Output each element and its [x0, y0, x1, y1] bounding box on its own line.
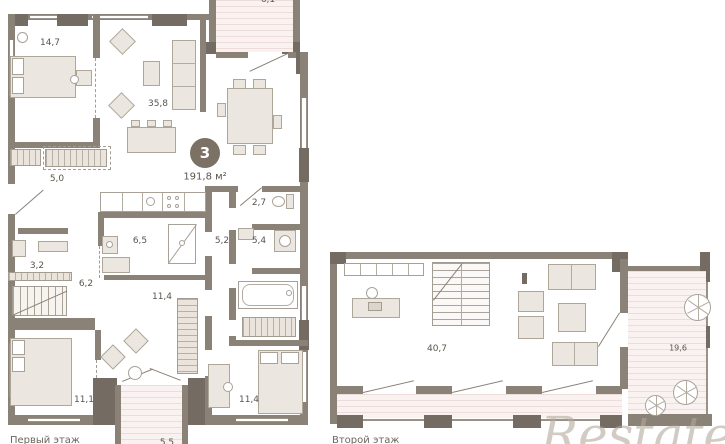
terrace-door-swing	[598, 312, 620, 346]
wall-segment	[205, 256, 212, 290]
room-area-balcony: 5,5	[160, 438, 174, 444]
room-area-terrace: 19,6	[669, 344, 687, 353]
wall-pillar	[424, 415, 452, 428]
wall-segment	[200, 20, 206, 112]
chair	[253, 79, 266, 89]
wall-segment	[330, 252, 628, 259]
room-area-closet: 3,2	[30, 261, 44, 271]
sofa	[552, 342, 598, 366]
shelf-row	[8, 272, 72, 281]
rooms-count: 3	[200, 144, 210, 162]
wall-segment	[8, 318, 95, 330]
wall-pillar	[337, 415, 363, 428]
sofa-cushion-line	[574, 343, 575, 365]
armchair	[518, 316, 544, 339]
armchair	[109, 28, 136, 55]
wall-segment	[620, 347, 628, 389]
floor1-caption: Первый этаж	[10, 435, 80, 444]
sliding-door	[95, 58, 98, 118]
counter-divider	[184, 193, 185, 211]
wall-segment	[98, 212, 206, 218]
window	[301, 286, 307, 320]
wall-segment	[262, 186, 308, 192]
balcony-floor	[121, 385, 182, 444]
bar-stool	[163, 120, 172, 127]
door-opening	[96, 360, 98, 378]
stairs	[432, 262, 490, 326]
wall-segment	[18, 228, 68, 234]
counter-divider	[142, 193, 143, 211]
door-opening	[99, 246, 101, 278]
pillow	[12, 357, 25, 372]
rooms-count-badge: 3	[190, 138, 220, 168]
wall-segment	[212, 186, 238, 192]
armchair	[108, 92, 135, 119]
shelf-divider	[392, 264, 393, 275]
wall-segment	[182, 385, 188, 444]
wall-segment	[330, 252, 337, 424]
chair	[233, 145, 246, 155]
bar-stool	[147, 120, 156, 127]
counter-divider	[122, 193, 123, 211]
washbasin-bowl	[106, 241, 113, 248]
chair	[253, 145, 266, 155]
room-area-bedroom: 14,7	[40, 38, 60, 48]
wall-segment	[596, 386, 622, 394]
pillow	[12, 340, 25, 355]
window	[30, 15, 57, 19]
room-area-lounge: 11,4	[152, 292, 172, 302]
side-table	[128, 366, 142, 380]
wall-segment	[252, 268, 300, 274]
stove-burner-icon	[167, 196, 171, 200]
towel-rack	[242, 317, 296, 337]
sofa	[172, 40, 196, 110]
floor2-caption: Второй этаж	[332, 435, 399, 444]
french-window-pane	[452, 380, 503, 393]
room-area-bedroom2: 11,1	[74, 395, 94, 405]
sink-icon	[146, 197, 155, 206]
wall-segment	[416, 386, 452, 394]
room-area-hall: 5,2	[215, 236, 229, 246]
window	[28, 418, 80, 422]
wall-pillar	[152, 14, 187, 26]
room-area-studio: 40,7	[427, 344, 447, 354]
total-area-label: 191,8 м²	[183, 172, 226, 183]
bench	[38, 241, 68, 252]
stove-burner-icon	[175, 196, 179, 200]
bath-cabinet	[102, 257, 130, 273]
washing-machine-door	[279, 235, 291, 247]
chair	[223, 382, 233, 392]
kitchen-island	[127, 127, 176, 153]
fireplace-mark	[522, 273, 527, 284]
chair	[233, 79, 246, 89]
wall-segment	[236, 340, 308, 346]
wall-segment	[104, 275, 206, 280]
sofa-cushion-line	[172, 63, 196, 64]
toilet-tank	[286, 194, 294, 209]
room-area-bathroom: 6,5	[133, 236, 147, 246]
wall-segment	[93, 14, 100, 58]
pillow	[12, 58, 24, 75]
window	[301, 98, 307, 148]
armchair	[100, 344, 125, 369]
room-area-wc: 2,7	[252, 198, 266, 208]
wall-segment	[229, 288, 236, 320]
room-area-shower-room: 5,4	[252, 236, 266, 246]
pillow	[281, 352, 299, 364]
entrance-door-swing	[15, 190, 44, 215]
sofa-cushion-line	[571, 265, 572, 289]
chair	[70, 75, 79, 84]
sofa	[548, 264, 596, 290]
terrace-door-swing	[250, 53, 288, 72]
armchair	[123, 328, 148, 353]
room-area-living: 35,8	[148, 99, 168, 109]
chair	[217, 103, 226, 117]
laptop	[368, 302, 382, 311]
coffee-table	[558, 303, 586, 332]
cabinet	[12, 240, 26, 257]
wall-segment	[205, 316, 212, 350]
terrace-plant-icon	[684, 294, 711, 321]
room-area-stair-hall: 6,2	[79, 279, 93, 289]
wall-segment	[620, 259, 628, 313]
room-area-bedroom3: 11,4	[239, 395, 259, 405]
stove-burner-icon	[167, 204, 171, 208]
wardrobe-shelf	[45, 149, 107, 167]
wall-segment	[337, 386, 363, 394]
window	[92, 15, 148, 19]
shelf-row	[344, 263, 424, 276]
pillow	[12, 77, 24, 94]
wall-segment	[216, 52, 248, 58]
shelf-divider	[408, 264, 409, 275]
wall-pillar	[299, 148, 309, 182]
watermark: Restate	[541, 410, 725, 444]
shelf-divider	[376, 264, 377, 275]
chair	[366, 287, 378, 299]
wall-segment	[506, 386, 542, 394]
french-window-pane	[542, 380, 593, 393]
toilet	[272, 196, 285, 207]
wall-segment	[229, 230, 236, 264]
wall-segment	[205, 186, 212, 232]
window	[236, 418, 288, 422]
room-area-terrace-top: 6,1	[261, 0, 275, 5]
wall-pillar	[93, 378, 117, 425]
counter-divider	[162, 193, 163, 211]
coffee-table	[143, 61, 160, 86]
stair-divider	[461, 263, 462, 325]
floor-plan-canvas: 3 191,8 м² 14,7 35,8 5,0 2,7 6,5 5,2 5,4…	[0, 0, 725, 444]
wall-pillar	[513, 415, 541, 428]
shelf-divider	[360, 264, 361, 275]
sofa-cushion-line	[172, 86, 196, 87]
french-window-pane	[363, 380, 414, 393]
shower-drain	[179, 240, 185, 246]
bathtub-drain	[286, 290, 292, 296]
dining-table	[227, 88, 273, 144]
terrace-plant-icon	[673, 380, 698, 405]
wardrobe-shelf	[10, 149, 41, 166]
armchair	[518, 291, 544, 312]
chair	[273, 115, 282, 129]
bar-stool	[131, 120, 140, 127]
wall-pillar	[57, 14, 88, 26]
room-area-wardrobe-hall: 5,0	[50, 174, 64, 184]
wardrobe-shelf	[177, 298, 198, 374]
stair-steps	[462, 263, 490, 325]
ceiling-light-icon	[17, 32, 28, 43]
terrace-floor	[216, 0, 293, 52]
stove-burner-icon	[175, 204, 179, 208]
wall-segment	[229, 336, 236, 346]
pillow	[260, 352, 278, 364]
